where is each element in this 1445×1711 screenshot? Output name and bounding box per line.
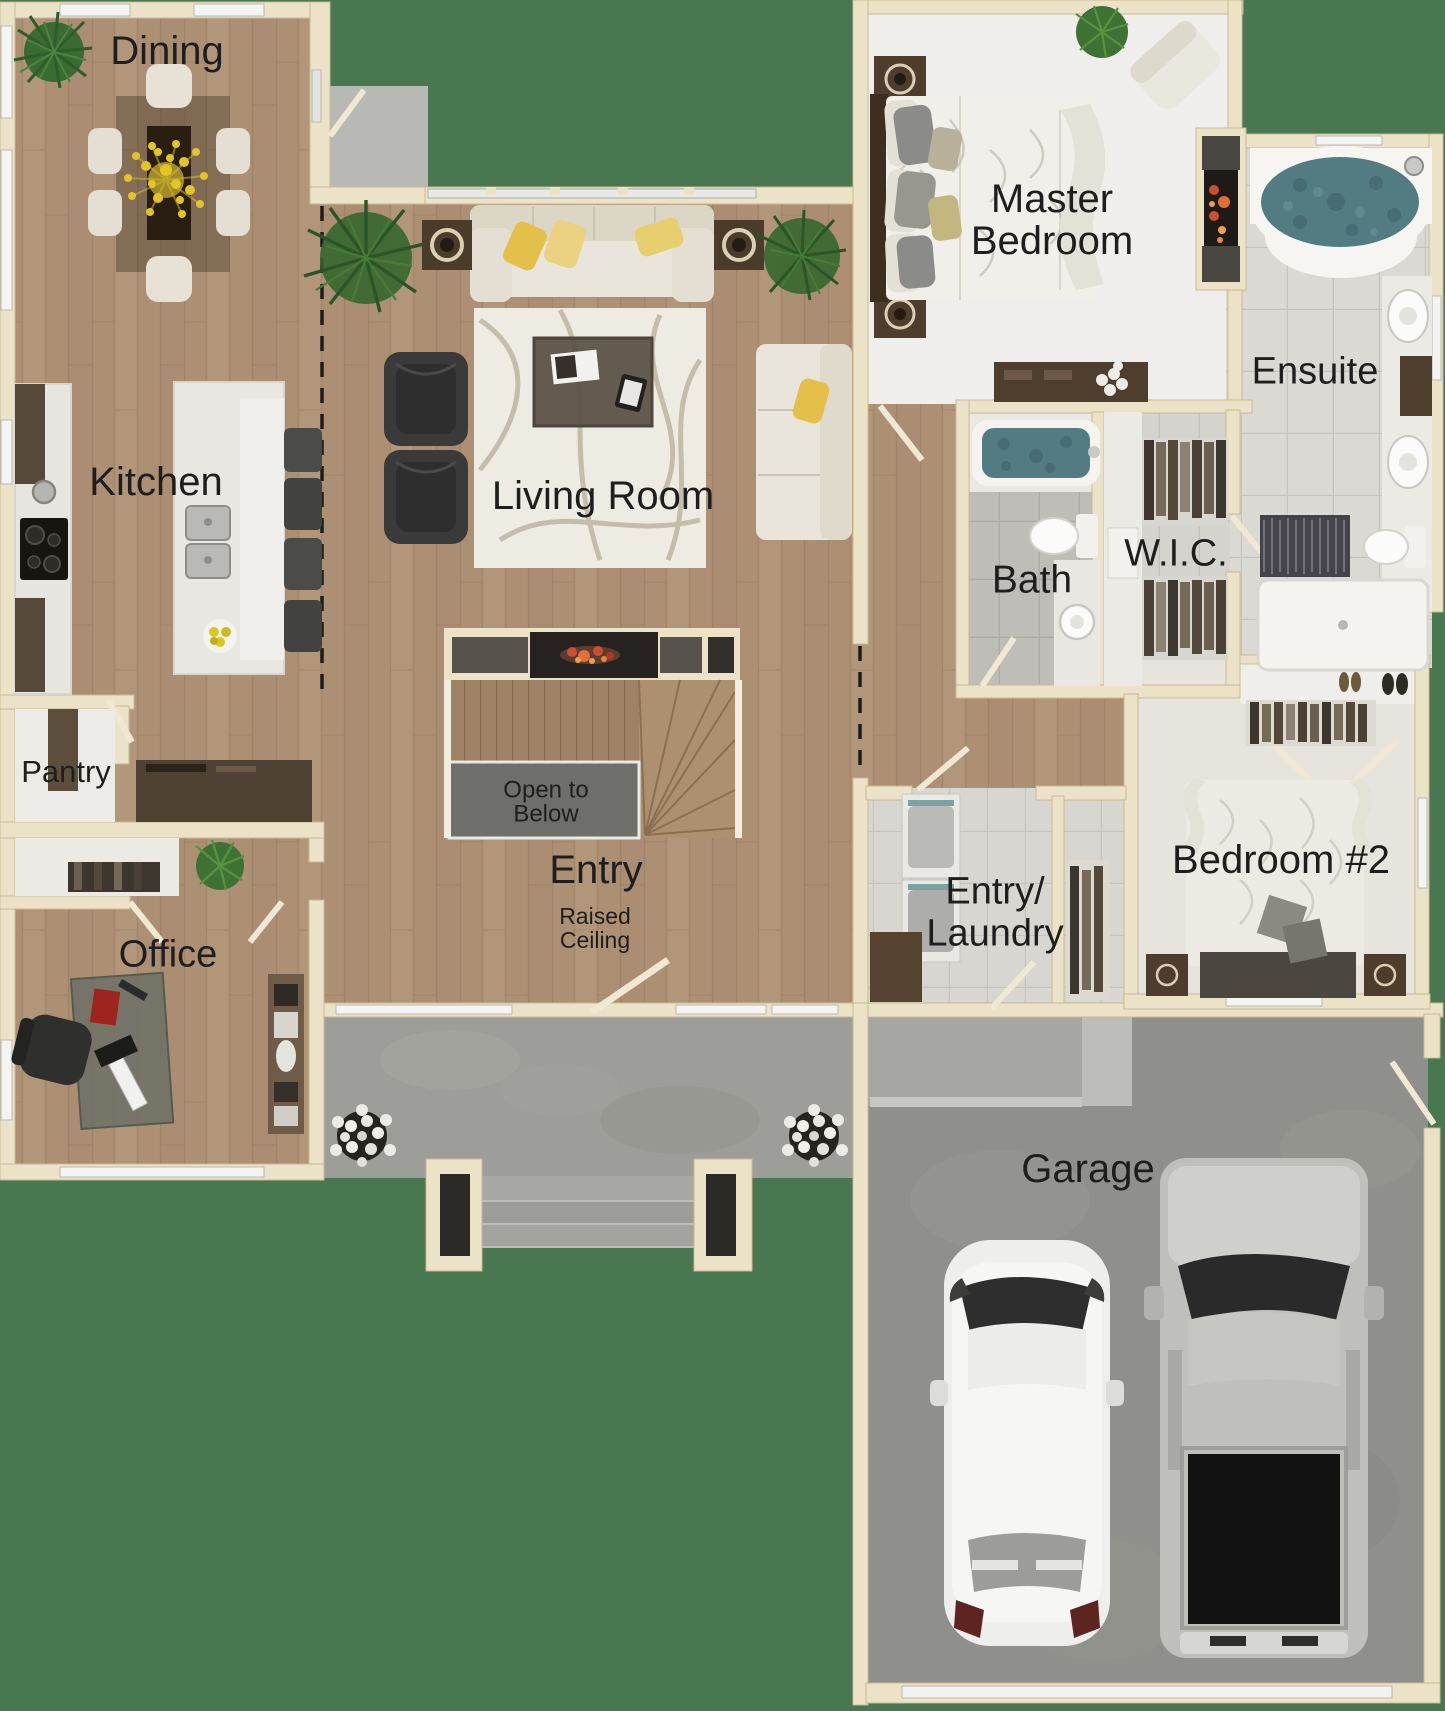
svg-text:Bedroom #2: Bedroom #2 <box>1172 838 1390 882</box>
svg-text:Ceiling: Ceiling <box>560 927 630 953</box>
svg-text:Pantry: Pantry <box>21 754 111 789</box>
svg-text:Ensuite: Ensuite <box>1252 350 1379 392</box>
svg-text:Bedroom: Bedroom <box>971 219 1133 263</box>
svg-text:Office: Office <box>119 933 218 975</box>
svg-text:Living Room: Living Room <box>492 474 714 518</box>
svg-text:Bath: Bath <box>992 559 1072 602</box>
svg-text:W.I.C.: W.I.C. <box>1124 532 1227 574</box>
svg-text:Open to: Open to <box>503 776 588 803</box>
svg-text:Dining: Dining <box>110 29 223 73</box>
svg-text:Garage: Garage <box>1021 1147 1154 1191</box>
svg-text:Raised: Raised <box>559 903 631 929</box>
svg-text:Kitchen: Kitchen <box>89 460 222 504</box>
svg-text:Below: Below <box>513 800 579 827</box>
svg-text:Master: Master <box>991 177 1113 221</box>
svg-text:Entry: Entry <box>549 848 642 892</box>
svg-text:Entry/: Entry/ <box>945 870 1045 912</box>
svg-text:Laundry: Laundry <box>926 912 1063 954</box>
